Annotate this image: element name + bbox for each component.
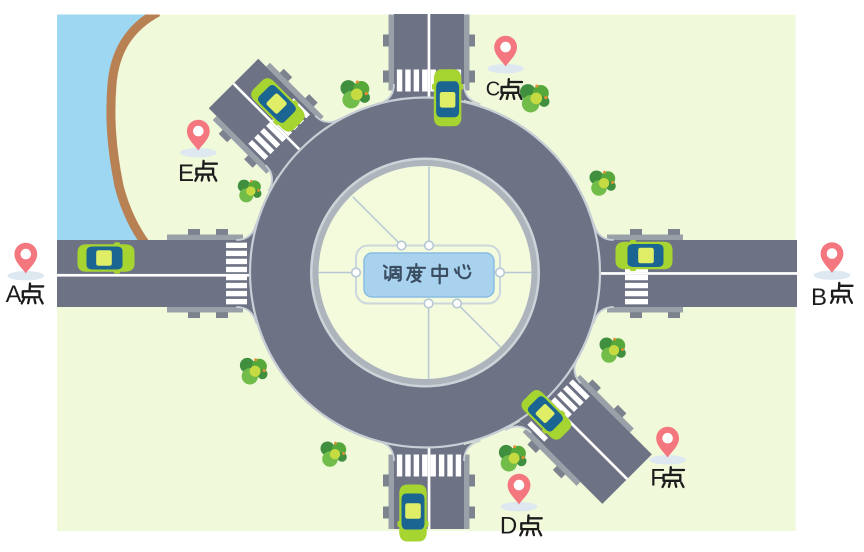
svg-text:C: C: [486, 79, 500, 101]
svg-text:D: D: [500, 513, 517, 540]
svg-text:A: A: [6, 281, 22, 308]
svg-text:B: B: [811, 284, 827, 311]
svg-text:E: E: [178, 160, 194, 187]
